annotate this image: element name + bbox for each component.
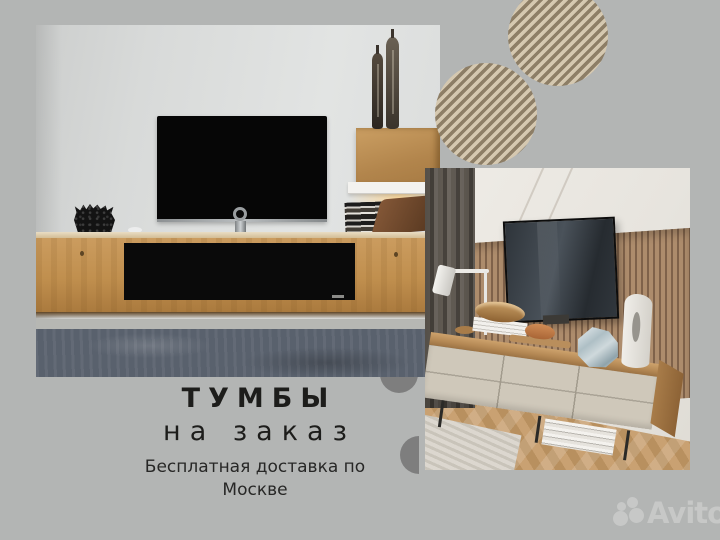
speaker-brand-label	[332, 295, 344, 298]
avito-dots-icon	[627, 497, 638, 508]
cabinet-leg	[623, 430, 630, 460]
headline-subtitle: на заказ	[70, 416, 440, 448]
tv-speaker-ring	[233, 207, 247, 221]
headline-block: ТУМБЫ на заказ Бесплатная доставка по Мо…	[70, 382, 440, 502]
sculpture-figurine	[372, 53, 383, 129]
ad-canvas: ТУМБЫ на заказ Бесплатная доставка по Мо…	[0, 0, 720, 540]
avito-dots-icon	[613, 511, 628, 526]
headline-title: ТУМБЫ	[70, 382, 440, 416]
tv-mount	[543, 315, 569, 325]
delivery-note-line1: Бесплатная доставка по	[70, 456, 440, 479]
photo-beige-tv-stand-interior	[425, 168, 690, 470]
lowboard-black-panel	[124, 243, 355, 300]
white-vase	[621, 293, 653, 368]
floor-strip	[36, 319, 440, 329]
drawer-knob	[394, 252, 398, 257]
striped-circle-bottom	[435, 63, 537, 165]
avito-dots-icon	[629, 508, 644, 523]
avito-dots-icon	[617, 502, 626, 511]
cabinet-leg	[535, 416, 542, 443]
photo-wooden-tv-wall-unit	[36, 25, 440, 377]
delivery-note-line2: Москве	[70, 479, 440, 502]
drawer-knob	[80, 251, 84, 256]
sculpture-figurine	[386, 37, 399, 129]
tv-screen	[157, 116, 327, 222]
delivery-note: Бесплатная доставка по Москве	[70, 456, 440, 502]
avito-wordmark: Avito	[647, 496, 720, 530]
slate-rug	[36, 329, 440, 377]
lowboard-shadow	[36, 312, 440, 319]
striped-circle-top	[508, 0, 608, 86]
avito-watermark: Avito	[610, 494, 720, 532]
